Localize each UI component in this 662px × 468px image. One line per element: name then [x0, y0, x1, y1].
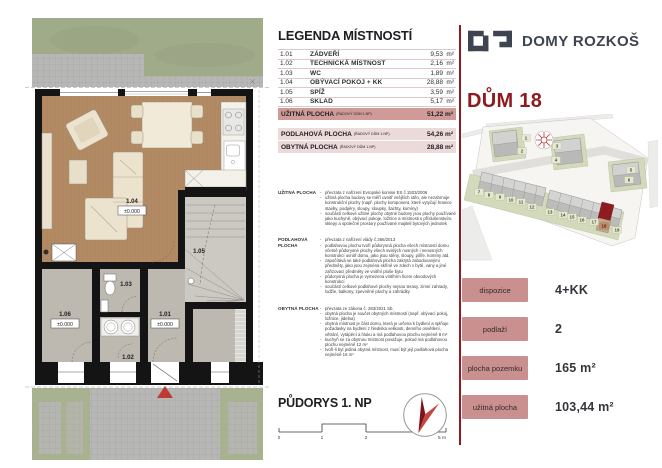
- room-code: 1.04: [280, 79, 310, 87]
- room-code: 1.02: [280, 60, 310, 68]
- legend-row: 1.04 OBÝVACÍ POKOJ + KK 28,88 m²: [278, 79, 456, 89]
- dining-table: [142, 102, 192, 148]
- total-note: (ŘADOVÝ DŮM 1.NP): [354, 132, 427, 136]
- legend-title: LEGENDA MÍSTNOSTÍ: [278, 28, 456, 43]
- room-area: 9,53: [417, 51, 443, 59]
- room-name: SKLAD: [310, 98, 417, 106]
- room-name: TECHNICKÁ MÍSTNOST: [310, 60, 417, 68]
- room-label: 1.02: [122, 355, 134, 361]
- definition-section: UŽITNÁ PLOCHA - převzata z nařízení Evro…: [278, 190, 456, 226]
- room-name: ZÁDVEŘÍ: [310, 51, 417, 59]
- definition-bullet: - tvoří-li byt jediná obytná místnost, m…: [320, 347, 456, 357]
- room-area-unit: m²: [443, 60, 454, 68]
- spec-value: 2: [555, 322, 562, 336]
- site-lot-number: 14: [561, 213, 566, 218]
- room-name: SPÍŽ: [310, 89, 417, 97]
- legend-row: 1.01 ZÁDVEŘÍ 9,53 m²: [278, 50, 456, 60]
- definition-bullet: - půdorysná plocha je vymezena vnitřním …: [320, 274, 456, 284]
- brand-logo-icon: [468, 30, 512, 52]
- svg-text:1: 1: [321, 435, 324, 441]
- side-table: [69, 160, 87, 184]
- site-lot-number: 17: [592, 220, 597, 225]
- total-label: UŽITNÁ PLOCHA: [281, 111, 334, 118]
- spec-label-chip: plocha pozemku: [462, 356, 528, 380]
- definition-bullet: - podlahovou plochu tvoří půdorysná ploc…: [320, 243, 456, 259]
- svg-text:±0.000: ±0.000: [57, 322, 73, 328]
- spec-value: 4+KK: [555, 283, 588, 297]
- definition-label: OBYTNÁ PLOCHA: [278, 306, 320, 358]
- svg-text:±0.000: ±0.000: [124, 209, 140, 215]
- toilet: [105, 281, 115, 295]
- room-label: 1.05: [193, 249, 205, 255]
- definition-bullet: - užitná plocha budovy se měří uvnitř vn…: [320, 195, 456, 211]
- legend-row: 1.03 WC 1,89 m²: [278, 69, 456, 79]
- specs-panel: dispozice 4+KK podlaží 2 plocha pozemku …: [462, 278, 658, 434]
- total-usable-area-row: UŽITNÁ PLOCHA (ŘADOVÝ DŮM 1.NP) 51,22 m²: [278, 108, 456, 120]
- room-code: 1.03: [280, 70, 310, 78]
- level-badge: ±0.000: [118, 206, 146, 215]
- legend-row: 1.06 SKLAD 5,17 m²: [278, 98, 456, 108]
- svg-text:±0.000: ±0.000: [157, 322, 173, 328]
- definition-bullet: - obytná místnost je část domu, která je…: [320, 321, 456, 337]
- site-lot-number: 12: [530, 205, 535, 210]
- definition-label: UŽITNÁ PLOCHA: [278, 190, 320, 226]
- sideboard: [42, 133, 52, 229]
- legend-row: 1.02 TECHNICKÁ MÍSTNOST 2,16 m²: [278, 60, 456, 70]
- room-code: 1.05: [280, 89, 310, 97]
- washbasin: [101, 300, 108, 312]
- definition-section: OBYTNÁ PLOCHA - převzata ze zákona č. 28…: [278, 306, 456, 358]
- brand-header: DOMY ROZKOŠ: [468, 30, 639, 52]
- entry-path: [90, 388, 220, 460]
- room-code: 1.01: [280, 51, 310, 59]
- site-lot-number: 10: [509, 198, 514, 203]
- definition-bullets: - převzata z nařízení vlády č.366/2013 -…: [320, 237, 456, 294]
- total-value: 54,26 m²: [427, 131, 453, 138]
- washer: [104, 320, 118, 334]
- house-title: DŮM 18: [467, 90, 542, 113]
- chair: [131, 131, 143, 144]
- room-area-unit: m²: [443, 79, 454, 87]
- spec-label-chip: podlaží: [462, 317, 528, 341]
- spec-value: 103,44 m²: [555, 400, 614, 414]
- shelving-hatch: [235, 309, 246, 362]
- room-name: WC: [310, 70, 417, 78]
- svg-text:2: 2: [365, 435, 368, 441]
- room-area: 2,16: [417, 60, 443, 68]
- garden-top: [25, 18, 270, 88]
- definition-bullets: - převzata ze zákona č. 283/2021 Sb. - o…: [320, 306, 456, 358]
- vertical-divider: [459, 25, 461, 445]
- brand-name: DOMY ROZKOŠ: [522, 33, 639, 50]
- total-row: PODLAHOVÁ PLOCHA (ŘADOVÝ DŮM 1.NP) 54,26…: [278, 128, 456, 141]
- room-area-unit: m²: [443, 89, 454, 97]
- svg-text:0: 0: [278, 435, 281, 441]
- room-area-unit: m²: [443, 98, 454, 106]
- total-label: PODLAHOVÁ PLOCHA: [281, 131, 352, 138]
- spec-row: dispozice 4+KK: [462, 278, 658, 302]
- spec-label-chip: dispozice: [462, 278, 528, 302]
- site-plan-panel: 12345678910111213141516171819: [462, 114, 658, 264]
- site-lot-number: 11: [519, 200, 524, 205]
- spec-value: 165 m²: [555, 361, 596, 375]
- total-note: (ŘADOVÝ DŮM 1.NP): [336, 112, 427, 116]
- roundabout-icon: [535, 131, 553, 149]
- room-area-unit: m²: [443, 51, 454, 59]
- spec-row: užitná plocha 103,44 m²: [462, 395, 658, 419]
- definition-bullet: - obytná plocha je součet obytných místn…: [320, 311, 456, 321]
- site-lot-number: 18: [602, 224, 607, 229]
- room-area: 28,88: [417, 79, 443, 87]
- legend-row: 1.05 SPÍŽ 3,59 m²: [278, 88, 456, 98]
- chair: [131, 105, 143, 118]
- site-plan-svg: 12345678910111213141516171819: [462, 114, 658, 264]
- legend-panel: LEGENDA MÍSTNOSTÍ 1.01 ZÁDVEŘÍ 9,53 m² 1…: [278, 28, 456, 154]
- room-name: OBÝVACÍ POKOJ + KK: [310, 79, 417, 87]
- room-label: 1.03: [120, 282, 132, 288]
- chair: [191, 105, 203, 118]
- north-arrow-icon: [400, 390, 450, 440]
- chair: [191, 131, 203, 144]
- definition-bullet: - součástí celkové užitné plochy obytné …: [320, 211, 456, 227]
- total-label: OBYTNÁ PLOCHA: [281, 144, 338, 151]
- level-badge: ±0.000: [151, 319, 179, 328]
- room-area: 1,89: [417, 70, 443, 78]
- definition-bullet: - kuchyň se za obytnou místnost považuje…: [320, 337, 456, 347]
- spec-row: plocha pozemku 165 m²: [462, 356, 658, 380]
- site-lot-number: 13: [548, 210, 553, 215]
- room-label: 1.06: [59, 312, 71, 318]
- site-lot-number: 16: [580, 218, 585, 223]
- definition-label: PODLAHOVÁ PLOCHA: [278, 237, 320, 294]
- site-lot-number: 19: [615, 228, 620, 233]
- definition-bullet: - započítává se také podlahová plocha za…: [320, 258, 456, 274]
- room-area: 5,17: [417, 98, 443, 106]
- dryer: [121, 320, 135, 334]
- room-area-unit: m²: [443, 70, 454, 78]
- floor-plan-panel: 1.04 ±0.000 1.05 1.03 1.06 ±0.000 1.01 ±…: [25, 10, 270, 460]
- room-label: 1.01: [159, 312, 171, 318]
- legend-table: 1.01 ZÁDVEŘÍ 9,53 m² 1.02 TECHNICKÁ MÍST…: [278, 49, 456, 107]
- level-badge: ±0.000: [51, 319, 79, 328]
- total-note: (ŘADOVÝ DŮM 1.NP): [340, 145, 427, 149]
- total-row: OBYTNÁ PLOCHA (ŘADOVÝ DŮM 1.NP) 28,88 m²: [278, 141, 456, 154]
- room-code: 1.06: [280, 98, 310, 106]
- datasheet-page: 1.04 ±0.000 1.05 1.03 1.06 ±0.000 1.01 ±…: [0, 0, 662, 468]
- room-area: 3,59: [417, 89, 443, 97]
- spec-row: podlaží 2: [462, 317, 658, 341]
- total-value: 51,22 m²: [427, 111, 453, 118]
- secondary-totals: PODLAHOVÁ PLOCHA (ŘADOVÝ DŮM 1.NP) 54,26…: [278, 128, 456, 154]
- definitions-panel: UŽITNÁ PLOCHA - převzata z nařízení Evro…: [278, 190, 456, 369]
- definition-bullet: - součástí celkové podlahové plochy nejs…: [320, 284, 456, 294]
- definition-bullets: - převzata z nařízení Evropské komise ES…: [320, 190, 456, 226]
- floor-plan-svg: 1.04 ±0.000 1.05 1.03 1.06 ±0.000 1.01 ±…: [25, 10, 270, 460]
- plan-title: PŮDORYS 1. NP: [278, 396, 372, 410]
- room-label: 1.04: [126, 199, 138, 205]
- total-value: 28,88 m²: [427, 144, 453, 151]
- spec-label-chip: užitná plocha: [462, 395, 528, 419]
- front-yard: [25, 386, 270, 460]
- site-lot-number: 15: [570, 215, 575, 220]
- definition-section: PODLAHOVÁ PLOCHA - převzata z nařízení v…: [278, 237, 456, 294]
